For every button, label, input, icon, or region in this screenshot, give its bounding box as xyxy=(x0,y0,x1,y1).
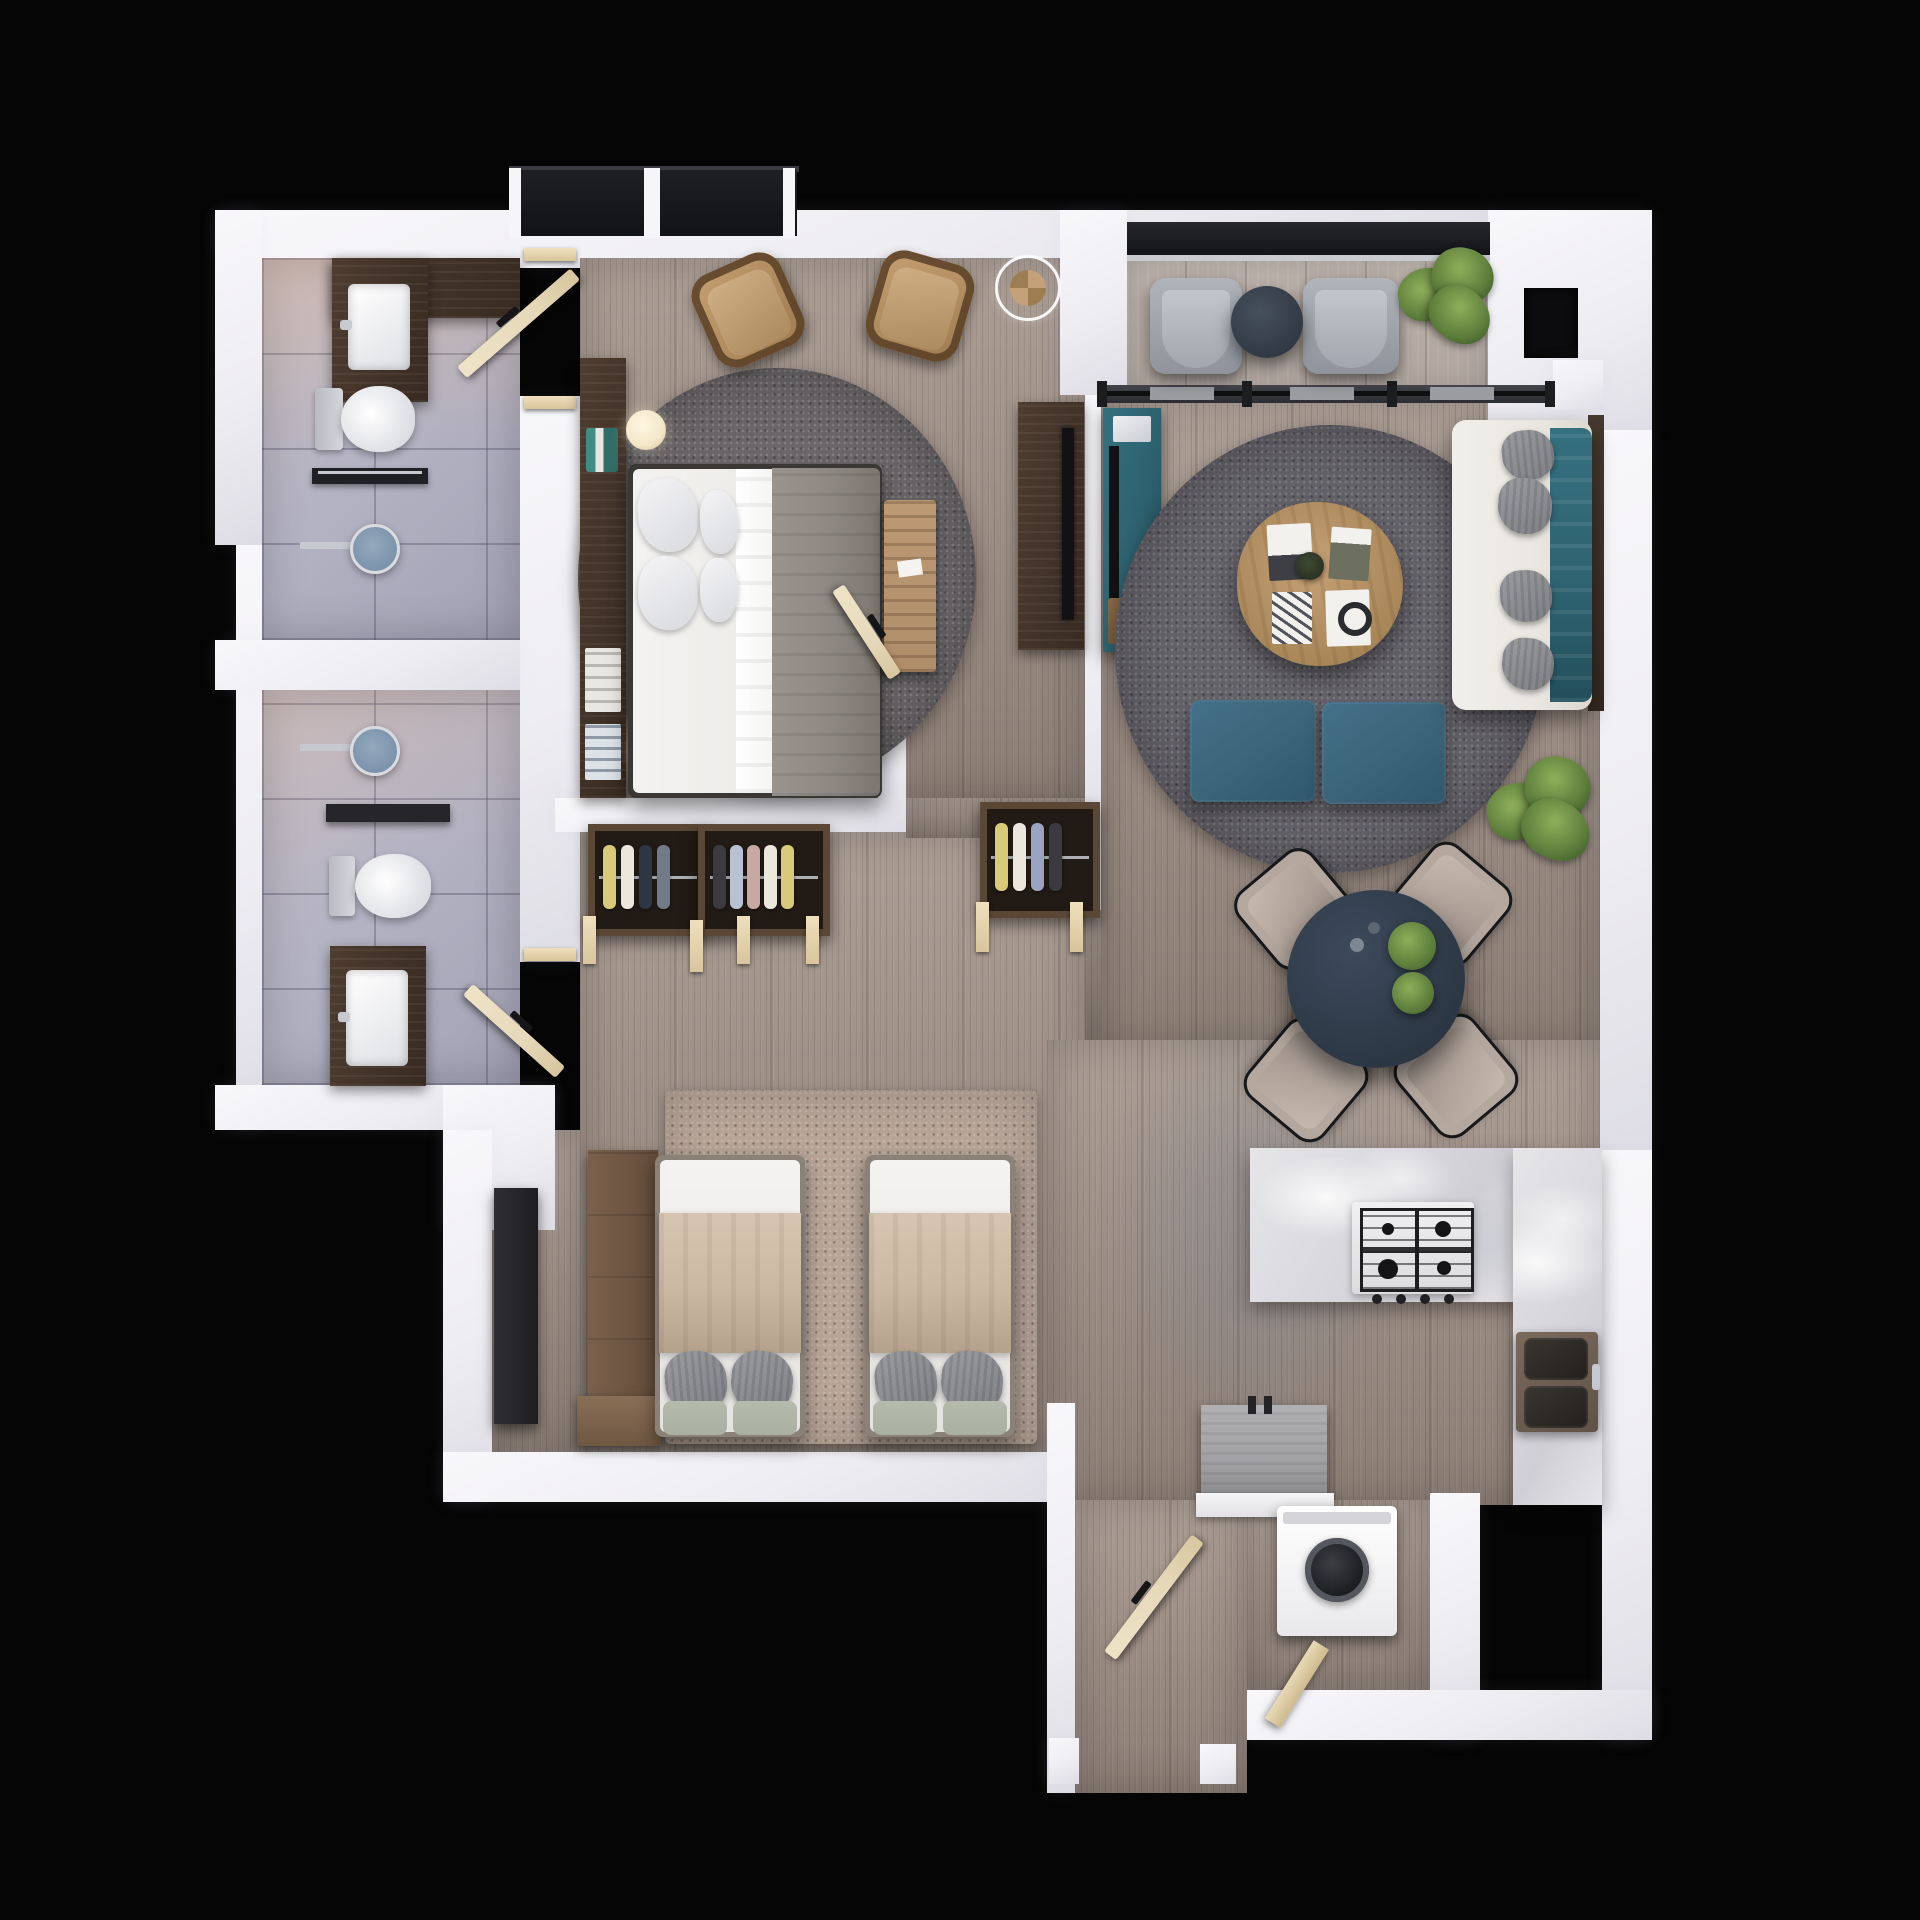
kitchen-blue-wash xyxy=(1090,1010,1420,1450)
washer-nook-floor xyxy=(1247,1500,1430,1692)
wall-bedroom2-bottom xyxy=(443,1452,1075,1502)
wall-nook-bottom xyxy=(1247,1690,1652,1740)
entry-floor xyxy=(1075,1500,1247,1793)
wall-bath-right-b xyxy=(520,396,580,962)
wall-right-upper xyxy=(1600,430,1652,1150)
master-window-frame xyxy=(509,166,799,172)
wall-top xyxy=(215,210,1500,258)
wall-bath-right-a xyxy=(520,258,580,268)
wall-bedroom2-left xyxy=(443,1130,492,1502)
wall-slider-end-block xyxy=(1553,360,1603,410)
master-bedroom-floor xyxy=(580,258,1085,798)
wall-left-lower xyxy=(236,545,262,1130)
bathroom2-light-wash xyxy=(262,690,520,860)
bathroom1-light-wash xyxy=(262,258,520,448)
wall-closet-top xyxy=(555,798,906,832)
wall-left-upper xyxy=(215,210,262,545)
wall-entry-left xyxy=(1047,1403,1075,1793)
balcony-deck xyxy=(1127,258,1490,395)
wall-console-partition xyxy=(1085,395,1101,910)
wall-between-baths xyxy=(215,640,520,690)
service-niche xyxy=(1524,288,1578,358)
wall-stub-master-door xyxy=(878,655,906,832)
hall-floor-patch xyxy=(906,798,1085,838)
living-room-floor xyxy=(1101,395,1602,1045)
apartment-floor-plan-render xyxy=(0,0,1920,1920)
wall-bedroom-balcony-divider xyxy=(1060,210,1127,395)
wall-right-kitchen xyxy=(1602,1150,1652,1740)
hallway-floor xyxy=(580,832,1085,1452)
